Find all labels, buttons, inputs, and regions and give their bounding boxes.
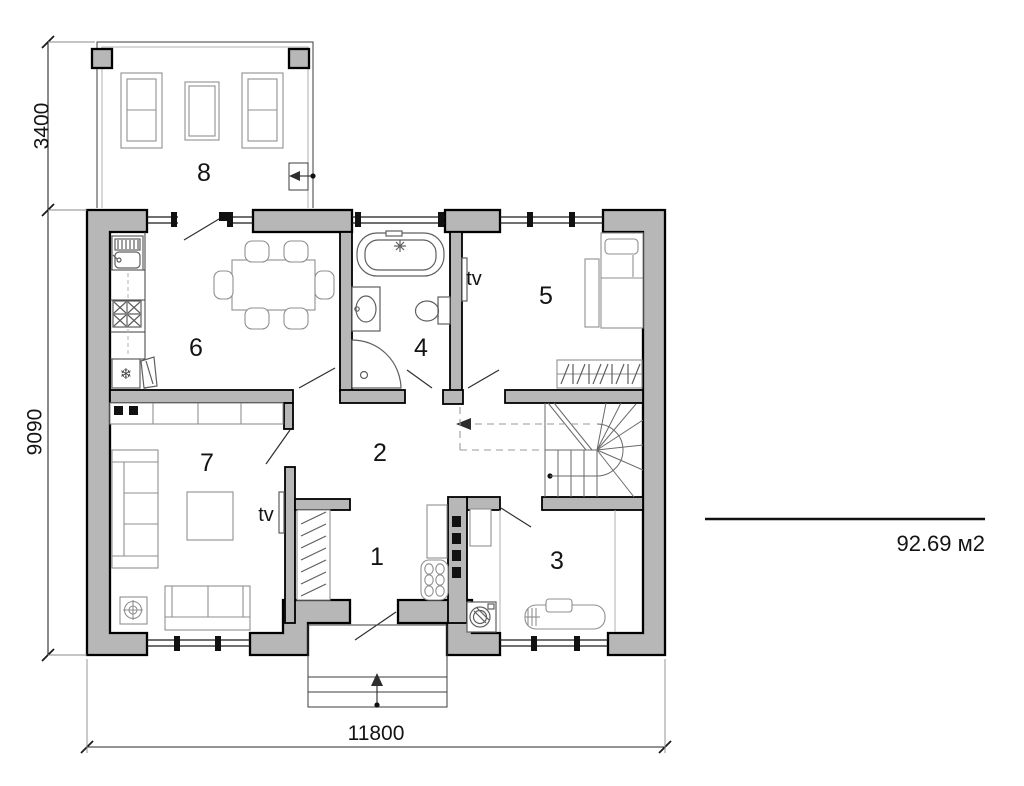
stair-direction-arrow-icon [456,418,471,430]
sofa-bottom-icon [165,586,250,630]
door-bathroom [407,370,432,388]
door-living [266,430,290,464]
floor-plan-canvas: ❄ [0,0,1024,786]
dimension-terrace-depth: 3400 [30,103,53,150]
dining-table-icon [232,260,315,310]
kitchen-sink-icon [112,236,143,270]
plant-icon [120,597,147,624]
living-tv-icon [279,492,284,533]
window-kitchen-top [227,212,253,227]
utility-cabinet-icon [470,509,491,546]
bedroom-tv-label: tv [466,268,482,290]
wall-door-post [443,390,463,404]
entrance-porch [308,625,447,708]
terrace-column-right-icon [289,49,309,68]
door-entrance [355,612,396,640]
room-label-6: 6 [189,334,203,362]
terrace-armchair-left-icon [121,73,162,148]
hall-wardrobe-icon [297,510,330,600]
area-annotation: 92.69 м2 [705,519,985,556]
kitchen-stove-icon [113,301,141,327]
wall-closet-stub [295,499,350,510]
room-label-1: 1 [370,543,384,571]
terrace-armchair-right-icon [242,73,283,148]
room-label-8: 8 [197,159,211,187]
total-area-label: 92.69 м2 [896,531,985,556]
bedroom-furniture [462,233,643,388]
window-bathroom [352,212,445,227]
hall-cabinet-icon [427,505,447,558]
bed-icon [601,233,643,328]
dimension-house-depth: 9090 [23,409,46,456]
wall-bathroom-bedroom [450,232,462,391]
wall-kitchen-bathroom [340,232,352,391]
floor-plan-page: ❄ [0,0,1024,786]
coffee-table-icon [187,492,233,540]
wall-kitchen-living [110,390,293,403]
ironing-board-icon [525,599,605,629]
fridge-snowflake-icon: ❄ [120,366,133,383]
living-tv-label: tv [258,504,274,526]
bedside-shelf-icon [585,259,599,327]
wall-living-hall1 [285,467,295,623]
terrace-table-icon [185,82,219,140]
washing-machine-icon [467,602,496,632]
porch-up-arrow-icon [371,673,383,708]
kitchen-fixtures: ❄ [110,232,334,390]
window-utility [500,636,608,651]
terrace-column-left-icon [92,49,112,68]
bathroom-fixtures [352,231,450,388]
room-label-4: 4 [414,334,428,362]
shower-icon [352,340,401,388]
door-bedroom [468,370,499,388]
staircase [456,403,643,497]
washbasin-icon [352,287,380,331]
room-label-2: 2 [373,439,387,467]
wall-entrance-left [250,600,350,655]
sofa-left-icon [112,450,158,568]
room-label-5: 5 [539,282,553,310]
sideboard-icon [110,403,283,424]
room-label-3: 3 [550,547,564,575]
bedroom-wardrobe-icon [557,360,642,388]
terrace-entry-arrow-icon [289,163,316,190]
kitchen-fridge-icon: ❄ [112,359,140,388]
kitchen-step-ladder-icon [141,357,157,388]
door-hall-kitchen [299,368,335,388]
wall-utility-top [467,497,500,510]
room-label-7: 7 [200,449,214,477]
wall-living-door-stub [284,403,293,429]
window-terrace [147,212,178,227]
wall-stairs-utility [542,497,643,510]
window-living [147,636,250,651]
door-utility [501,508,531,527]
door-terrace-kitchen [184,212,228,240]
window-bedroom [500,212,603,227]
dimension-house-width: 11800 [348,722,405,745]
bathtub-icon [357,231,444,276]
wall-bathroom-hall [340,390,405,403]
wall-top-b [445,210,500,232]
utility-furniture [467,509,615,632]
wall-top-a [253,210,352,232]
toilet-icon [416,297,451,324]
wall-left [87,210,147,655]
pouf-icon [421,560,448,600]
wall-hall-bedroom [505,390,643,403]
